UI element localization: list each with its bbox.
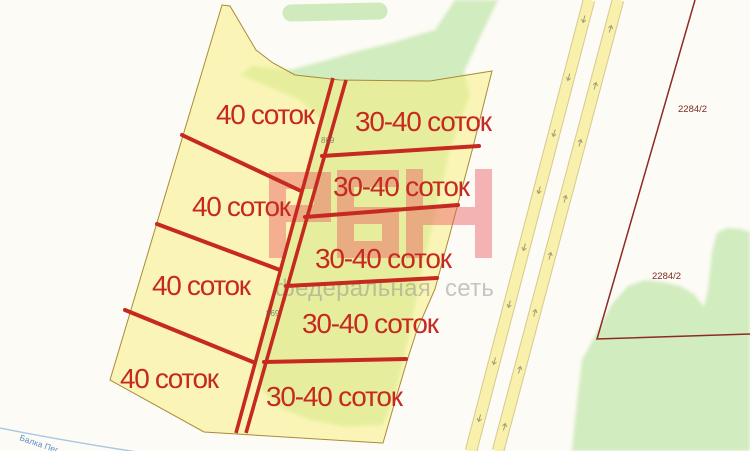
svg-text:30-40 соток: 30-40 соток (355, 106, 493, 137)
svg-text:40 соток: 40 соток (152, 270, 252, 301)
svg-text:2284/2: 2284/2 (678, 104, 707, 115)
svg-text:30-40 соток: 30-40 соток (266, 381, 404, 412)
svg-text:30-40 соток: 30-40 соток (315, 243, 453, 274)
svg-text:869: 869 (321, 136, 335, 145)
svg-text:30-40 соток: 30-40 соток (302, 308, 440, 339)
svg-text:40 соток: 40 соток (216, 99, 316, 130)
svg-text:869: 869 (266, 309, 280, 318)
svg-text:40 соток: 40 соток (120, 363, 220, 394)
svg-text:40 соток: 40 соток (192, 191, 292, 222)
svg-text:30-40 соток: 30-40 соток (333, 171, 471, 202)
svg-text:2284/2: 2284/2 (652, 271, 681, 282)
